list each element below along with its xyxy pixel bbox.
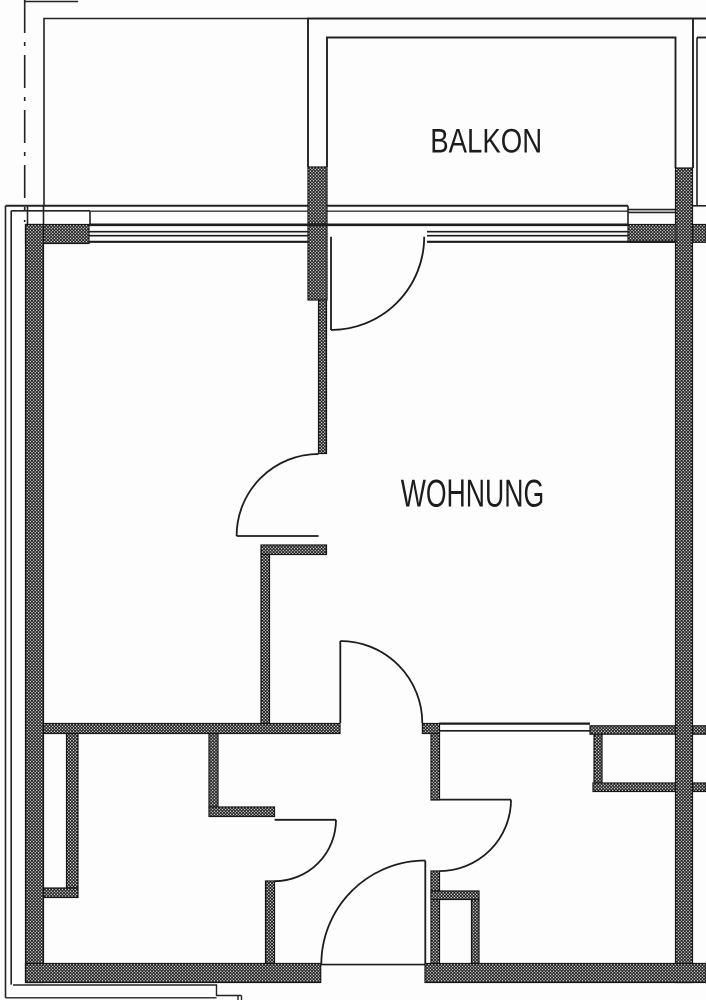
svg-text:WOHNUNG: WOHNUNG xyxy=(401,473,544,516)
svg-text:BALKON: BALKON xyxy=(430,121,542,160)
